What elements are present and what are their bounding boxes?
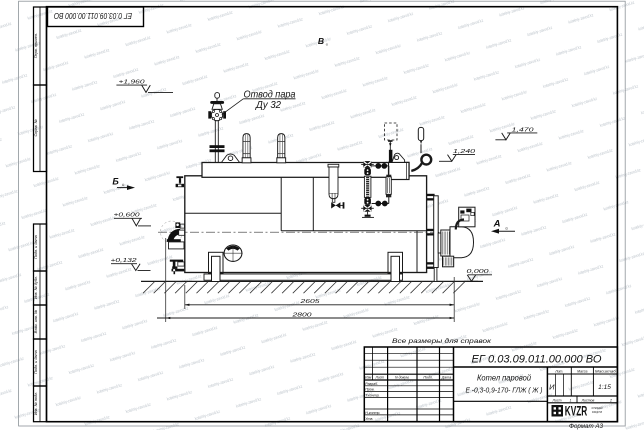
svg-text:Б: Б — [112, 176, 119, 186]
svg-text:Подп.: Подп. — [423, 376, 433, 380]
svg-text:Е -0,3-0,9-170- ГЛЖ ( Ж ): Е -0,3-0,9-170- ГЛЖ ( Ж ) — [466, 388, 543, 395]
svg-text:Взам. инв. №: Взам. инв. № — [34, 310, 38, 333]
svg-text:Изм: Изм — [365, 376, 372, 380]
svg-text:Ду 32: Ду 32 — [255, 100, 282, 111]
svg-text:Инв. № подл.: Инв. № подл. — [34, 392, 38, 416]
svg-text:Формат А3: Формат А3 — [569, 423, 604, 430]
svg-text:Дата: Дата — [441, 376, 451, 380]
svg-text:Масштаб: Масштаб — [595, 369, 617, 373]
svg-text:Утв.: Утв. — [365, 417, 373, 421]
svg-text:ЕГ 0.03.09.011.00.000 ВО: ЕГ 0.03.09.011.00.000 ВО — [54, 11, 132, 21]
svg-text:Инв. № дубл.: Инв. № дубл. — [34, 276, 38, 299]
svg-text:0,000: 0,000 — [467, 269, 490, 275]
svg-text:КОТЕЛЬНЫЙ: КОТЕЛЬНЫЙ — [592, 406, 603, 410]
svg-text:Листов: Листов — [581, 398, 595, 402]
svg-text:Пров.: Пров. — [365, 388, 374, 392]
svg-text:Лист: Лист — [551, 398, 561, 402]
svg-text:+0,600: +0,600 — [114, 213, 141, 219]
svg-text:Все размеры для справок: Все размеры для справок — [392, 338, 492, 345]
svg-text:Масса: Масса — [577, 369, 587, 373]
svg-text:N докум.: N докум. — [395, 376, 410, 380]
svg-text:1: 1 — [570, 398, 572, 402]
svg-text:Лит.: Лит. — [554, 369, 563, 373]
svg-text:⊙: ⊙ — [122, 183, 125, 187]
svg-text:Подп. и дата: Подп. и дата — [34, 235, 38, 259]
svg-text:2605: 2605 — [299, 299, 321, 305]
svg-text:А: А — [493, 219, 501, 230]
svg-text:⊙: ⊙ — [505, 227, 508, 231]
svg-text:Н.контр.: Н.контр. — [365, 411, 380, 415]
svg-text:В: В — [318, 36, 324, 46]
svg-text:ЗАВОД РЭР: ЗАВОД РЭР — [592, 410, 602, 414]
svg-text:1:15: 1:15 — [598, 384, 611, 391]
svg-text:Разраб.: Разраб. — [365, 382, 378, 386]
svg-text:Подп. и дата: Подп. и дата — [34, 350, 38, 374]
svg-text:Т.контр.: Т.контр. — [365, 394, 380, 398]
svg-text:Перв. примен.: Перв. примен. — [34, 33, 38, 58]
svg-text:Лист: Лист — [375, 376, 385, 380]
svg-text:2: 2 — [609, 398, 612, 402]
svg-text:2800: 2800 — [291, 312, 313, 318]
svg-text:Справ. №: Справ. № — [34, 119, 38, 136]
svg-text:Котел паровой: Котел паровой — [477, 374, 532, 383]
svg-text:ЕГ 0.03.09.011.00.000 ВО: ЕГ 0.03.09.011.00.000 ВО — [472, 353, 603, 365]
svg-text:⊙: ⊙ — [326, 43, 329, 47]
svg-text:+0,132: +0,132 — [111, 258, 138, 264]
svg-text:KVZR: KVZR — [565, 404, 588, 419]
svg-text:И: И — [549, 382, 555, 391]
